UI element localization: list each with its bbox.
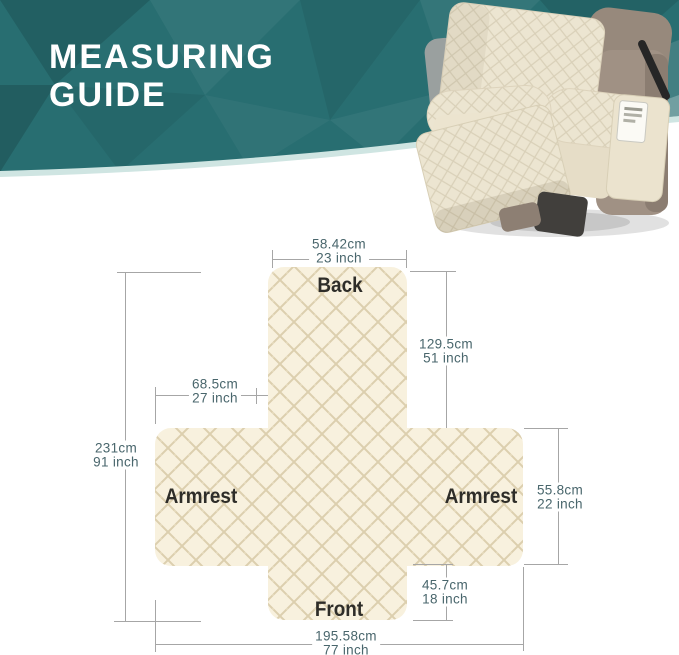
dimension-tick (413, 620, 453, 621)
value-cm: 68.5cm (192, 378, 238, 392)
dimension-tick (272, 250, 273, 268)
cover-flat-cross-shape (155, 267, 523, 620)
dimension-armrest-width-value: 68.5cm 27 inch (189, 377, 241, 406)
dimension-tick (155, 387, 156, 424)
value-cm: 231cm (93, 442, 139, 456)
dimension-tick (410, 271, 456, 272)
dimension-armrest-height-value: 55.8cm 22 inch (534, 483, 586, 512)
value-cm: 58.42cm (312, 238, 366, 252)
value-inch: 91 inch (93, 455, 139, 469)
dimension-back-length-value: 129.5cm 51 inch (416, 337, 476, 366)
value-inch: 77 inch (315, 643, 377, 655)
dimension-tick (523, 567, 524, 651)
dimension-tick (524, 428, 568, 429)
dimension-total-length-value: 231cm 91 inch (90, 441, 142, 470)
value-cm: 195.58cm (315, 630, 377, 644)
value-inch: 51 inch (419, 351, 473, 365)
dimension-tick (413, 564, 453, 565)
dimension-total-width-value: 195.58cm 77 inch (312, 629, 380, 655)
section-label-back: Back (317, 274, 362, 298)
value-cm: 45.7cm (422, 579, 468, 593)
value-cm: 55.8cm (537, 484, 583, 498)
value-inch: 18 inch (422, 592, 468, 606)
dimension-tick (406, 250, 407, 268)
dimension-tick (114, 621, 201, 622)
dimension-tick (117, 272, 201, 273)
value-inch: 27 inch (192, 391, 238, 405)
dimension-tick (155, 600, 156, 652)
dimension-tick (524, 564, 568, 565)
section-label-front: Front (315, 598, 363, 622)
value-inch: 22 inch (537, 497, 583, 511)
cover-cross-diagram (0, 0, 679, 655)
value-cm: 129.5cm (419, 338, 473, 352)
dimension-front-length-value: 45.7cm 18 inch (419, 578, 471, 607)
section-label-armrest-left: Armrest (165, 485, 237, 509)
dimension-tick (256, 388, 257, 404)
dimension-back-width-value: 58.42cm 23 inch (309, 237, 369, 266)
section-label-armrest-right: Armrest (445, 485, 517, 509)
measuring-guide-infographic: MEASURING GUIDE Back Armrest Armrest Fro… (0, 0, 679, 655)
value-inch: 23 inch (312, 251, 366, 265)
